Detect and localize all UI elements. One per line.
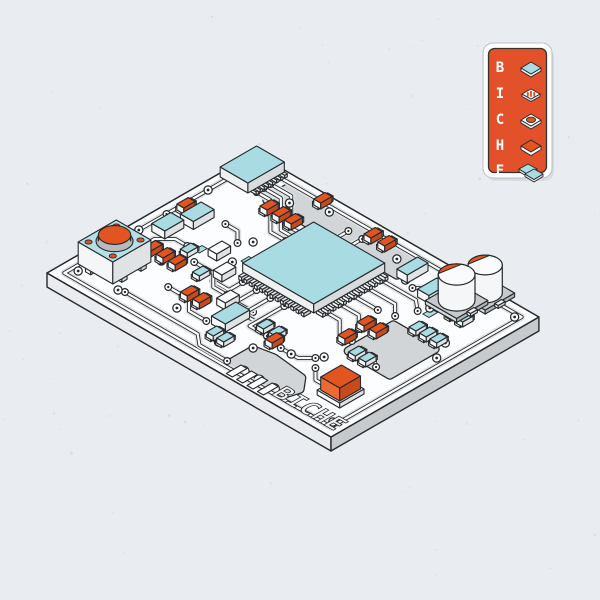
via: [74, 267, 82, 275]
via: [393, 255, 401, 263]
badge-letter: B: [496, 60, 504, 76]
via: [204, 186, 212, 194]
pcb-isometric-illustration: BICHEBICHE: [0, 0, 600, 600]
badge-letter: E: [496, 163, 504, 179]
via: [511, 313, 519, 321]
album-art-canvas: BICHEBICHE: [0, 0, 600, 600]
via: [285, 199, 293, 207]
badge-panel: BICHE: [483, 43, 554, 182]
badge-letter: I: [496, 86, 504, 102]
via: [433, 354, 441, 362]
via: [325, 208, 333, 216]
via: [114, 286, 122, 294]
via: [287, 350, 295, 358]
badge-letter: C: [496, 112, 504, 128]
via: [320, 353, 328, 361]
via: [249, 344, 257, 352]
via: [249, 238, 257, 246]
badge-letter: H: [496, 138, 504, 154]
via: [173, 304, 181, 312]
